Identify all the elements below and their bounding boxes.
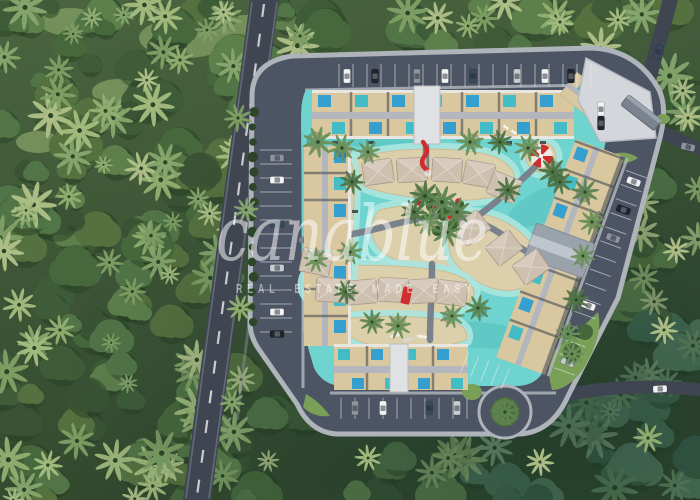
car — [270, 177, 284, 184]
bungalow — [431, 157, 463, 183]
car — [653, 385, 667, 393]
south-apartment-wing — [334, 344, 468, 392]
car — [454, 401, 461, 415]
car — [426, 401, 433, 415]
north-apartment-wing — [312, 86, 574, 144]
roundabout — [479, 386, 531, 438]
car — [598, 102, 605, 116]
car — [470, 69, 477, 83]
car — [442, 69, 449, 83]
car — [352, 401, 359, 415]
car — [414, 69, 421, 83]
aerial-resort-render: canablue REAL ESTATE MADE EASY — [0, 0, 700, 500]
scene-canvas: canablue REAL ESTATE MADE EASY — [0, 0, 700, 500]
bungalow — [361, 158, 394, 186]
car — [270, 309, 284, 316]
watermark-tagline: REAL ESTATE MADE EASY — [236, 282, 476, 296]
car — [270, 331, 284, 338]
car — [380, 401, 387, 415]
watermark-brand: canablue — [216, 189, 488, 278]
car — [514, 69, 521, 83]
car — [542, 69, 549, 83]
car — [598, 116, 605, 130]
car — [568, 69, 575, 83]
car — [344, 69, 351, 83]
car — [270, 155, 284, 162]
car — [372, 69, 379, 83]
